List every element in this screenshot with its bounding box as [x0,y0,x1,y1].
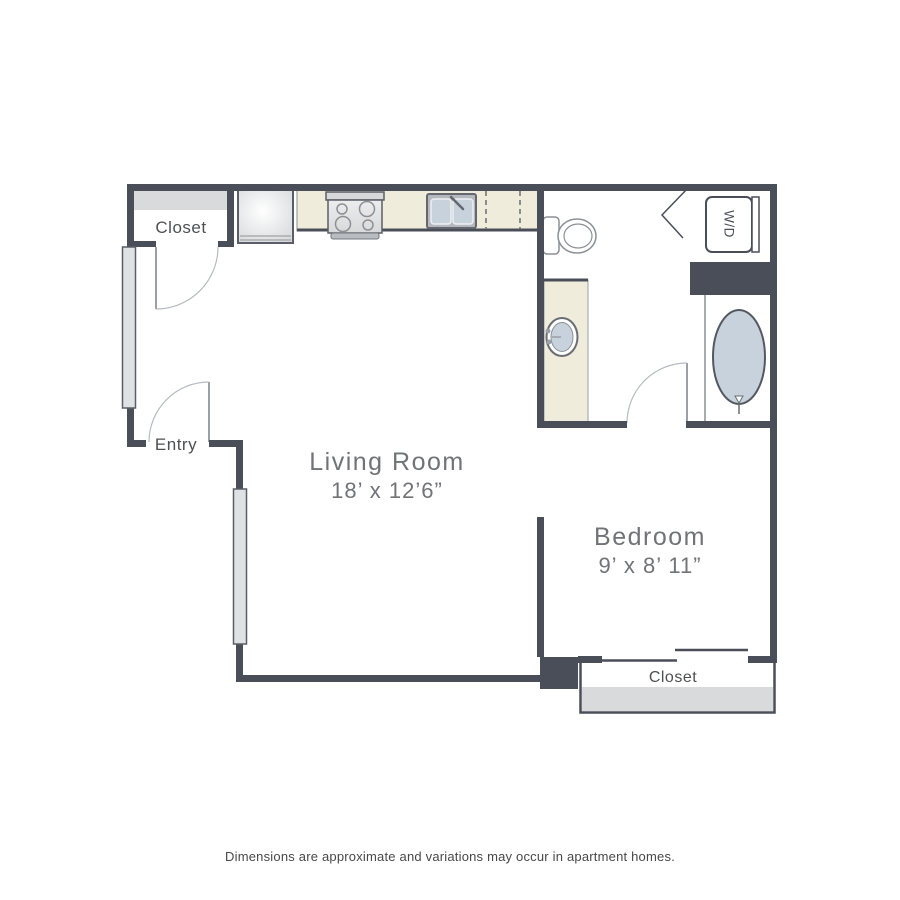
entry-label: Entry [155,435,197,454]
window-symbol [123,247,136,408]
refrigerator-icon [238,190,293,243]
wall-right [770,184,777,663]
wall-bedroom-bottom-right [748,656,777,663]
bedroom-dimensions: 9’ x 8’ 11” [598,553,701,578]
wall-tub-block [690,262,777,295]
toilet-tank [543,217,559,254]
living-room-label: Living Room [309,448,464,476]
floor-plan-page: W/D [0,0,900,900]
faucet-knob [546,329,551,334]
wall-corner-block [540,657,578,689]
disclaimer-text: Dimensions are approximate and variation… [0,849,900,864]
living-room-dimensions: 18’ x 12’6” [331,478,443,503]
stove-control-panel [326,192,384,200]
closet-shade-band [134,191,227,210]
floor-plan-drawing: W/D [0,0,900,900]
bathroom-sink-icon [546,318,578,356]
wall-kitchen-bath-divider [537,184,544,428]
closet-top-left-label: Closet [155,218,206,237]
stove-base [331,233,379,239]
sink-basin [431,199,451,224]
wall-entry-left-stub [127,440,146,447]
kitchen-sink-icon [427,194,476,228]
bedroom-label: Bedroom [594,523,706,551]
washer-dryer-icon: W/D [706,197,759,252]
wall-bath-bottom-left [537,421,627,428]
toilet-bowl-inner [564,224,592,248]
window-symbol [234,489,247,644]
wall-top [127,184,777,191]
wall-bath-bottom-right [686,421,777,428]
toilet-icon [543,217,596,254]
wall-living-bottom [236,675,540,682]
closet-shade-band [582,687,773,711]
wall-living-bedroom-divider [537,517,544,657]
bedroom-closet [579,659,776,714]
wall-closet-right [227,184,234,247]
wall-closet-stub-left [127,241,156,247]
stove-icon [326,192,384,239]
wall-bedroom-bottom-left [578,656,602,663]
faucet-knob [547,340,552,345]
washer-dryer-label: W/D [722,210,737,238]
closet-bedroom-label: Closet [649,669,697,686]
